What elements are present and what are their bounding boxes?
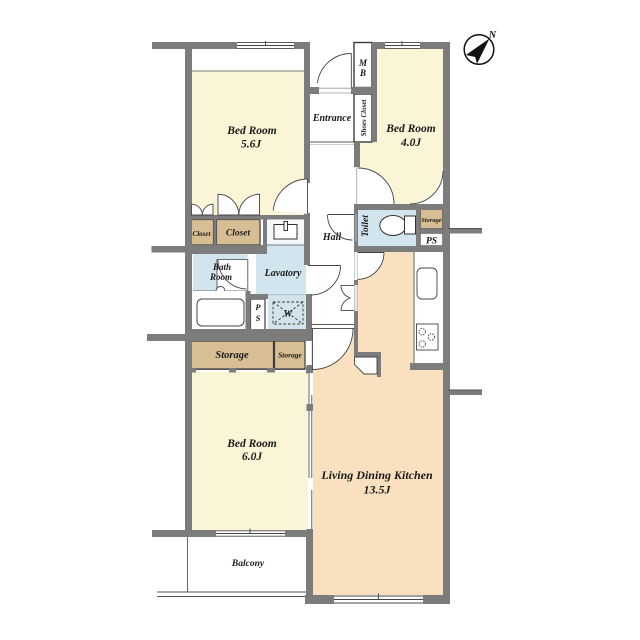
svg-text:Storage: Storage [421, 217, 442, 224]
svg-text:M: M [358, 58, 368, 68]
svg-text:PS: PS [426, 237, 437, 247]
svg-text:Closet: Closet [226, 229, 251, 239]
svg-text:Storage: Storage [215, 350, 249, 361]
svg-text:13.5J: 13.5J [364, 483, 392, 497]
svg-text:Lavatory: Lavatory [264, 268, 302, 279]
svg-text:6.0J: 6.0J [242, 451, 263, 463]
svg-text:Bath: Bath [212, 262, 231, 272]
svg-text:Bed Room: Bed Room [226, 125, 277, 137]
svg-text:Closet: Closet [193, 230, 212, 238]
svg-text:N: N [488, 30, 497, 41]
svg-text:Living Dining Kitchen: Living Dining Kitchen [320, 468, 433, 482]
svg-text:S: S [256, 313, 261, 323]
svg-text:B: B [359, 68, 366, 78]
svg-text:Bed Room: Bed Room [226, 438, 277, 450]
svg-text:Room: Room [209, 272, 232, 282]
svg-text:Balcony: Balcony [231, 559, 265, 569]
svg-text:Toilet: Toilet [361, 215, 371, 237]
svg-text:W: W [284, 309, 294, 320]
svg-text:5.6J: 5.6J [241, 139, 262, 151]
svg-text:P: P [255, 302, 261, 312]
svg-text:Bed Room: Bed Room [385, 123, 436, 135]
svg-text:4.0J: 4.0J [400, 137, 422, 149]
svg-text:Entrance: Entrance [312, 113, 352, 124]
svg-text:Hall: Hall [322, 232, 342, 243]
svg-text:Storage: Storage [278, 351, 302, 360]
svg-text:Shoes Closet: Shoes Closet [360, 99, 368, 137]
